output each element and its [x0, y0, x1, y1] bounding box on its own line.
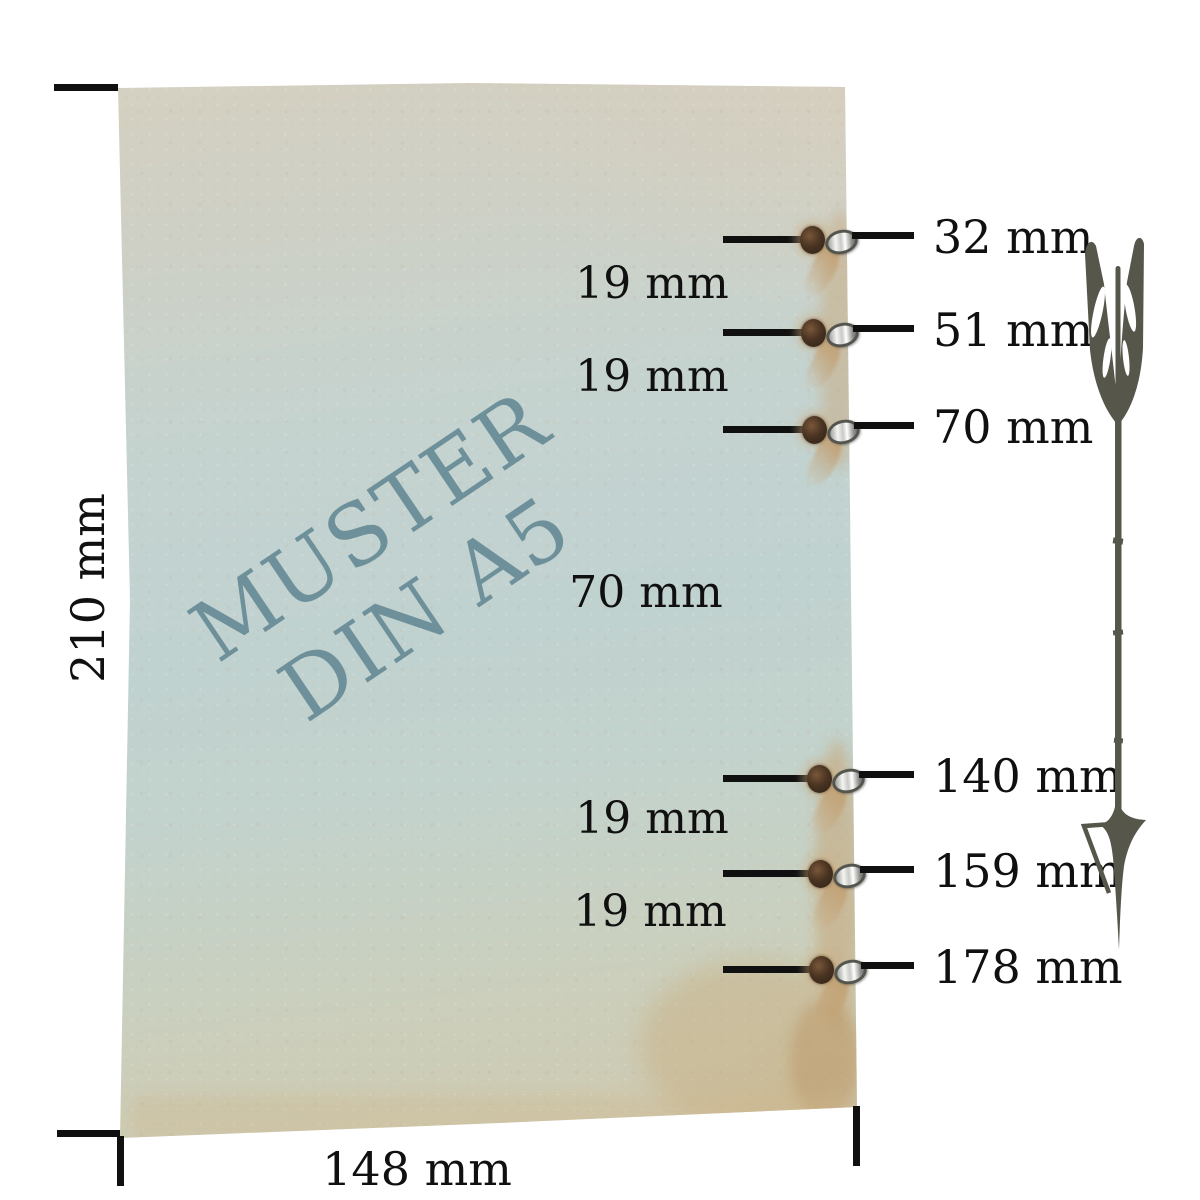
dimension-line-right [853, 325, 914, 332]
hole-measurement-label: 32 mm [933, 211, 1093, 263]
paper-width-label: 148 mm [322, 1142, 512, 1196]
gap-measurement-label: 19 mm [575, 262, 728, 306]
dimension-line-right [861, 962, 914, 969]
hole-measurement-label: 51 mm [933, 304, 1093, 356]
dimension-line-right [852, 232, 914, 239]
paper-height-label: 210 mm [61, 493, 115, 683]
tick-bottom-left-horizontal [57, 1130, 120, 1137]
hole-measurement-label: 70 mm [933, 401, 1093, 453]
diagram-canvas: MUSTER DIN A5 210 mm 148 mm 32 mm 51 mm [0, 0, 1200, 1200]
edge-stain [820, 210, 860, 470]
bottom-edge-stain [130, 1095, 850, 1140]
gap-measurement-label: 19 mm [575, 355, 728, 399]
dimension-line-right [859, 771, 914, 778]
gap-measurement-label: 70 mm [569, 571, 722, 615]
dimension-line-right [860, 866, 914, 873]
tick-bottom-left-vertical [117, 1136, 124, 1186]
gap-measurement-label: 19 mm [575, 797, 728, 841]
down-arrow-icon [1080, 238, 1152, 952]
tick-top-left [54, 84, 118, 91]
dimension-line-right [854, 422, 914, 429]
gap-measurement-label: 19 mm [573, 890, 726, 934]
tick-bottom-right-vertical [853, 1106, 860, 1166]
